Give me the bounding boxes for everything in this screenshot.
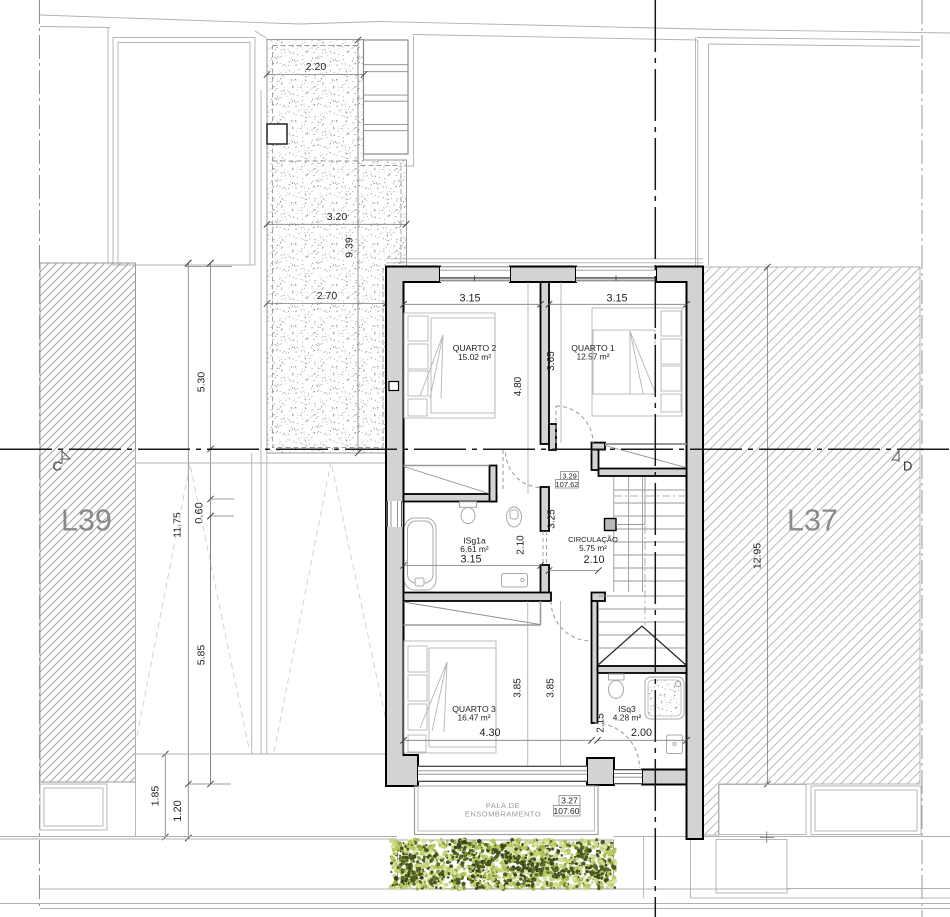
- svg-text:L39: L39: [61, 504, 112, 538]
- svg-text:5.30: 5.30: [196, 372, 208, 393]
- svg-text:C: C: [53, 459, 62, 474]
- svg-text:2.10: 2.10: [516, 535, 527, 555]
- svg-text:0.60: 0.60: [194, 502, 206, 523]
- svg-text:L37: L37: [787, 504, 838, 538]
- svg-text:1.85: 1.85: [150, 786, 162, 807]
- svg-text:3.15: 3.15: [460, 554, 481, 566]
- svg-text:2.00: 2.00: [631, 727, 652, 739]
- svg-text:5.85: 5.85: [196, 645, 208, 666]
- svg-text:4.30: 4.30: [479, 727, 500, 739]
- svg-text:107.60: 107.60: [554, 806, 580, 816]
- svg-text:3.15: 3.15: [606, 293, 627, 305]
- svg-text:5.75 m²: 5.75 m²: [579, 544, 607, 553]
- svg-text:3.27: 3.27: [561, 796, 578, 806]
- svg-text:2.10: 2.10: [583, 554, 604, 566]
- svg-text:2.20: 2.20: [306, 61, 327, 73]
- svg-text:2.70: 2.70: [317, 290, 338, 302]
- svg-text:CIRCULAÇÃO: CIRCULAÇÃO: [568, 535, 618, 544]
- svg-text:3.15: 3.15: [459, 293, 480, 305]
- svg-text:3.25: 3.25: [547, 509, 558, 529]
- svg-text:12.57 m²: 12.57 m²: [576, 352, 609, 362]
- svg-text:3.85: 3.85: [513, 678, 524, 698]
- svg-text:1.20: 1.20: [172, 800, 184, 821]
- svg-text:D: D: [903, 459, 912, 474]
- svg-text:107.62: 107.62: [556, 480, 579, 489]
- svg-text:11.75: 11.75: [172, 512, 184, 538]
- svg-text:6.61 m²: 6.61 m²: [460, 544, 489, 554]
- svg-text:ENSOMBRAMENTO: ENSOMBRAMENTO: [465, 810, 541, 819]
- svg-text:3.85: 3.85: [546, 678, 557, 698]
- svg-text:3.65: 3.65: [546, 351, 557, 371]
- svg-text:16.47 m²: 16.47 m²: [457, 713, 490, 723]
- svg-text:4.28 m²: 4.28 m²: [613, 713, 642, 723]
- svg-text:12.95: 12.95: [752, 543, 764, 569]
- svg-text:15.02 m²: 15.02 m²: [458, 352, 491, 362]
- svg-text:2.15: 2.15: [596, 713, 607, 733]
- svg-text:4.80: 4.80: [513, 376, 524, 396]
- svg-text:9.39: 9.39: [344, 237, 356, 258]
- svg-text:3.20: 3.20: [327, 211, 348, 223]
